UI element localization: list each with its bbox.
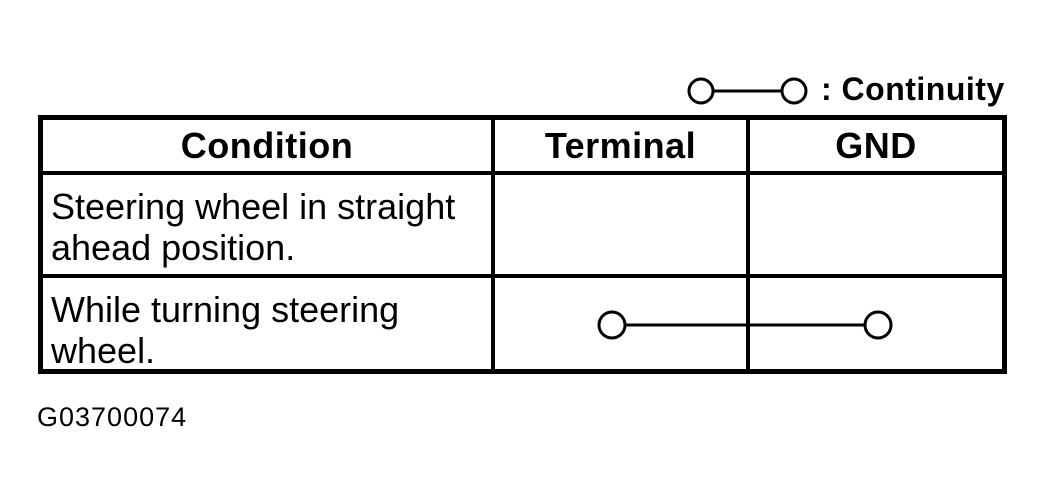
row1-terminal-cell bbox=[495, 175, 750, 278]
table-header-gnd: GND bbox=[750, 120, 1002, 175]
table-header-condition: Condition bbox=[43, 120, 495, 175]
row2-terminal-cell bbox=[495, 278, 750, 369]
table-header-terminal: Terminal bbox=[495, 120, 750, 175]
continuity-symbol-icon bbox=[687, 76, 808, 106]
continuity-table: Condition Terminal GND Steering wheel in… bbox=[38, 115, 1007, 374]
continuity-legend: : Continuity bbox=[687, 75, 1005, 107]
row1-gnd-cell bbox=[750, 175, 1002, 278]
row1-condition-cell: Steering wheel in straight ahead positio… bbox=[43, 175, 495, 278]
figure-code: G03700074 bbox=[37, 402, 187, 433]
legend-label: : Continuity bbox=[821, 71, 1005, 108]
row2-gnd-cell bbox=[750, 278, 1002, 369]
row2-condition-cell: While turning steering wheel. bbox=[43, 278, 495, 369]
